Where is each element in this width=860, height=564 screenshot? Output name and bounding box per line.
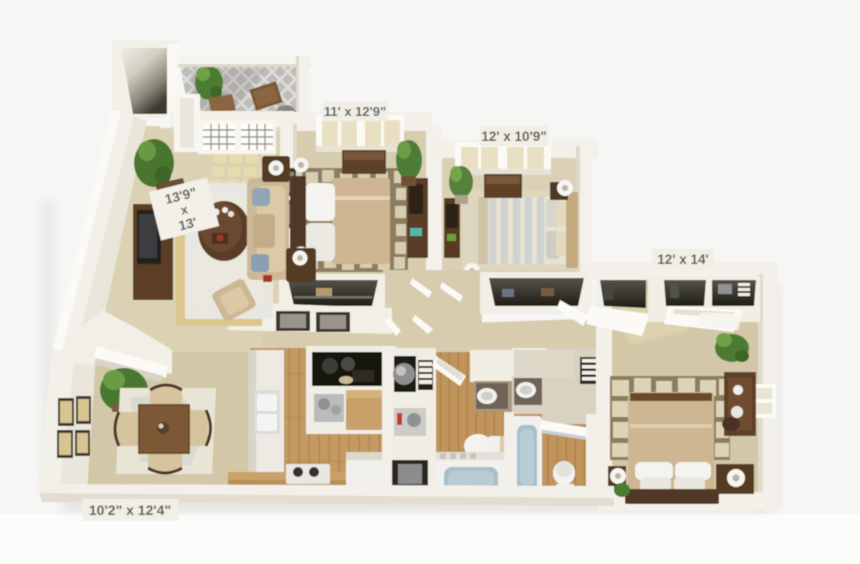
svg-text:11' x 12'9": 11' x 12'9" <box>324 104 386 119</box>
svg-text:12' x 14': 12' x 14' <box>657 252 708 267</box>
svg-text:12' x 10'9": 12' x 10'9" <box>481 129 546 144</box>
svg-text:10'2" x 12'4": 10'2" x 12'4" <box>89 502 171 518</box>
